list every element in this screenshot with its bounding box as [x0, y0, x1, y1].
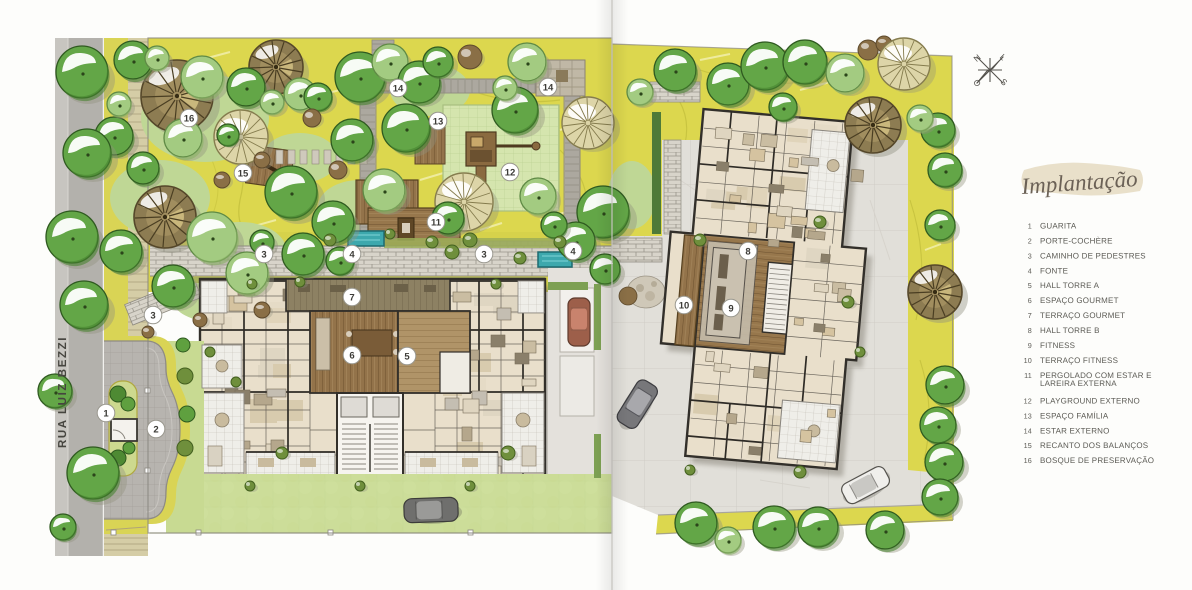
svg-text:ESTAR EXTERNO: ESTAR EXTERNO — [1040, 426, 1110, 435]
svg-text:ESPAÇO FAMÍLIA: ESPAÇO FAMÍLIA — [1040, 411, 1109, 420]
svg-text:3: 3 — [481, 249, 486, 260]
svg-text:TERRAÇO GOURMET: TERRAÇO GOURMET — [1040, 311, 1125, 320]
svg-text:1: 1 — [103, 408, 109, 419]
svg-text:HALL TORRE A: HALL TORRE A — [1040, 281, 1100, 290]
svg-text:ESPAÇO GOURMET: ESPAÇO GOURMET — [1040, 296, 1119, 305]
svg-text:12: 12 — [505, 167, 516, 178]
svg-text:RUA LUIZ BEZZI: RUA LUIZ BEZZI — [57, 336, 69, 448]
svg-text:10: 10 — [1024, 356, 1032, 365]
svg-text:8: 8 — [1028, 326, 1032, 335]
svg-text:GUARITA: GUARITA — [1040, 222, 1077, 231]
svg-text:FONTE: FONTE — [1040, 266, 1068, 275]
svg-text:14: 14 — [1024, 426, 1032, 435]
svg-text:10: 10 — [679, 300, 690, 311]
svg-text:TERRAÇO FITNESS: TERRAÇO FITNESS — [1040, 356, 1118, 365]
svg-text:13: 13 — [1024, 411, 1032, 420]
svg-text:2: 2 — [1028, 236, 1032, 245]
svg-text:BOSQUE DE PRESERVAÇÃO: BOSQUE DE PRESERVAÇÃO — [1040, 455, 1154, 465]
svg-text:11: 11 — [1024, 371, 1032, 380]
svg-text:3: 3 — [150, 310, 155, 321]
svg-text:PORTE-COCHÈRE: PORTE-COCHÈRE — [1040, 236, 1113, 245]
svg-text:3: 3 — [1028, 251, 1032, 260]
svg-text:15: 15 — [1024, 441, 1032, 450]
svg-text:11: 11 — [431, 217, 442, 228]
svg-text:1: 1 — [1028, 222, 1032, 231]
svg-text:5: 5 — [404, 351, 410, 362]
svg-text:6: 6 — [1028, 296, 1032, 305]
svg-text:14: 14 — [543, 82, 554, 93]
svg-text:PLAYGROUND EXTERNO: PLAYGROUND EXTERNO — [1040, 397, 1140, 406]
svg-text:CAMINHO DE PEDESTRES: CAMINHO DE PEDESTRES — [1040, 251, 1146, 260]
svg-text:7: 7 — [1028, 311, 1032, 320]
svg-text:12: 12 — [1024, 397, 1032, 406]
svg-text:16: 16 — [184, 113, 195, 124]
svg-text:14: 14 — [393, 83, 404, 94]
svg-text:16: 16 — [1024, 456, 1032, 465]
svg-text:FITNESS: FITNESS — [1040, 341, 1075, 350]
svg-text:9: 9 — [728, 303, 733, 314]
svg-text:5: 5 — [1028, 281, 1032, 290]
svg-text:2: 2 — [153, 424, 158, 435]
svg-text:8: 8 — [745, 246, 750, 257]
svg-text:LAREIRA EXTERNA: LAREIRA EXTERNA — [1040, 379, 1117, 388]
svg-text:9: 9 — [1028, 341, 1032, 350]
svg-text:6: 6 — [349, 350, 354, 361]
svg-text:4: 4 — [1028, 266, 1032, 275]
svg-text:13: 13 — [433, 116, 444, 127]
svg-text:7: 7 — [349, 292, 354, 303]
svg-text:4: 4 — [570, 246, 576, 257]
svg-text:HALL TORRE B: HALL TORRE B — [1040, 326, 1100, 335]
svg-text:4: 4 — [349, 249, 355, 260]
svg-text:3: 3 — [261, 249, 266, 260]
svg-text:RECANTO DOS BALANÇOS: RECANTO DOS BALANÇOS — [1040, 441, 1148, 450]
svg-text:15: 15 — [238, 168, 249, 179]
